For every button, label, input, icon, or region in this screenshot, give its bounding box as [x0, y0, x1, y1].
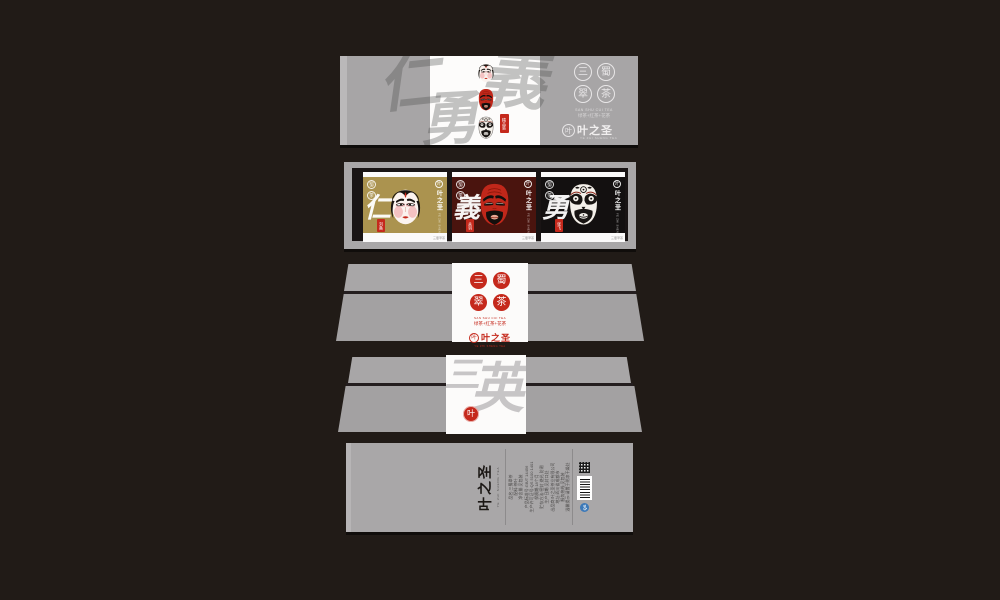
- name-seal: 关羽: [466, 219, 474, 232]
- brand-latin-name: SAN SHU CUI TEA: [554, 108, 634, 112]
- maker-logo-subtext: YE ZHI SHENG TEA: [580, 136, 617, 140]
- brand-seal-grid: 三 蜀 翠 茶: [574, 63, 615, 103]
- maker-logo-name: 叶之圣: [475, 463, 495, 511]
- maker-logo-name: 叶之圣: [524, 190, 533, 211]
- maker-logo: 叶之圣 YE ZHI SHENG TEA: [475, 463, 500, 511]
- brand-tagline: 绿茶+红茶+花茶: [554, 113, 634, 119]
- card-logo-column: 叶 叶之圣 YE ZHI SHENG TEA: [434, 180, 444, 233]
- mini-seal-char: 蜀: [545, 180, 554, 189]
- codes-row: QS: [577, 462, 592, 512]
- qs-certification-icon: QS: [580, 503, 589, 512]
- brand-seal-char: 茶: [597, 85, 615, 103]
- brand-seal-grid-red: 三 蜀 翠 茶: [470, 272, 510, 311]
- guan-yu-red-mask-icon: [476, 87, 496, 113]
- mini-seal-char: 蜀: [456, 180, 465, 189]
- maker-logo-name: 叶之圣: [613, 190, 622, 211]
- card-fine-print: 三蜀翠茶: [522, 236, 534, 240]
- card-body-black: 蜀 茶 勇 张飞 叶 叶之圣 YE ZHI SHENG TEA: [541, 177, 625, 233]
- lid2-white-strip: 三 英 叶: [446, 355, 526, 434]
- panel-edge-highlight: [346, 443, 351, 532]
- maker-logo-subtext: YE ZHI SHENG TEA: [438, 213, 441, 233]
- brand-seal-char: 茶: [493, 294, 510, 311]
- liu-bei-white-mask-icon: [476, 59, 496, 85]
- brand-seal-char: 蜀: [597, 63, 615, 81]
- maker-logo: 叶 叶之圣: [469, 331, 511, 344]
- brand-latin-name: SAN SHU CUI TEA: [474, 316, 506, 320]
- barcode-bars: [580, 478, 590, 498]
- card-logo-column: 叶 叶之圣 YE ZHI SHENG TEA: [523, 180, 533, 233]
- leaf-logo-icon: 叶: [435, 180, 443, 188]
- liu-bei-white-mask-icon: [386, 180, 425, 230]
- opera-masks-stack: [476, 59, 496, 141]
- watermark-char: 英: [470, 361, 524, 415]
- tea-card-guanyu: 蜀 茶 義 关羽 叶 叶之圣 YE ZHI SHENG TEA 三蜀翠茶: [452, 172, 536, 242]
- top-sleeve-panel: 仁 義 勇 精品装 三 蜀 翠 茶 SAN SHU CUI TEA 绿茶+红茶+…: [340, 56, 638, 145]
- barcode: [577, 476, 592, 500]
- name-seal: 刘备: [377, 219, 385, 232]
- maker-logo-subtext: YE ZHI SHENG TEA: [474, 345, 505, 348]
- red-round-seal: 叶: [463, 406, 479, 422]
- brand-tagline: 绿茶+红茶+花茶: [474, 321, 506, 327]
- zhang-fei-black-mask-icon: [564, 180, 603, 230]
- leaf-logo-icon: 叶: [524, 180, 532, 188]
- brand-seal-char: 三: [574, 63, 592, 81]
- qr-code-icon: [579, 462, 590, 473]
- brand-seal-char: 三: [470, 272, 487, 289]
- zhang-fei-black-mask-icon: [476, 115, 496, 141]
- leaf-logo-icon: 叶: [613, 180, 621, 188]
- tea-card-zhangfei: 蜀 茶 勇 张飞 叶 叶之圣 YE ZHI SHENG TEA 三蜀翠茶: [541, 172, 625, 242]
- maker-logo-subtext: YE ZHI SHENG TEA: [616, 213, 619, 233]
- gift-tag-seal: 精品装: [500, 114, 509, 133]
- maker-logo-name: 叶之圣: [481, 331, 511, 344]
- brand-seal-char: 翠: [574, 85, 592, 103]
- card-body-gold: 蜀 茶 仁 刘备 叶 叶之圣 YE ZHI SHENG TEA: [363, 177, 447, 233]
- maker-logo-name: 叶之圣: [435, 190, 444, 211]
- tea-card-liubei: 蜀 茶 仁 刘备 叶 叶之圣 YE ZHI SHENG TEA 三蜀翠茶: [363, 172, 447, 242]
- product-info-text: 品名:三蜀翠茶 配料:茶叶 净含量:见包装 产品标准号:GB/T 14456 生…: [505, 449, 573, 525]
- maker-logo-subtext: YE ZHI SHENG TEA: [496, 463, 500, 511]
- info-line: 温馨提示:请置于阴凉干燥处: [565, 449, 570, 525]
- maker-logo-subtext: YE ZHI SHENG TEA: [527, 213, 530, 233]
- brand-seal-char: 蜀: [493, 272, 510, 289]
- lid-white-strip: 三 蜀 翠 茶 SAN SHU CUI TEA 绿茶+红茶+花茶 叶 叶之圣 Y…: [452, 263, 528, 342]
- packaging-mockup-canvas: 仁 義 勇 精品装 三 蜀 翠 茶 SAN SHU CUI TEA 绿茶+红茶+…: [0, 0, 1000, 600]
- card-body-maroon: 蜀 茶 義 关羽 叶 叶之圣 YE ZHI SHENG TEA: [452, 177, 536, 233]
- mini-seal-char: 蜀: [367, 180, 376, 189]
- leaf-logo-icon: 叶: [562, 124, 575, 137]
- name-seal: 张飞: [555, 219, 563, 232]
- rotated-info-block: 叶之圣 YE ZHI SHENG TEA 品名:三蜀翠茶 配料:茶叶 净含量:见…: [467, 447, 615, 527]
- brand-seal-char: 翠: [470, 294, 487, 311]
- card-logo-column: 叶 叶之圣 YE ZHI SHENG TEA: [612, 180, 622, 233]
- info-back-panel: 叶之圣 YE ZHI SHENG TEA 品名:三蜀翠茶 配料:茶叶 净含量:见…: [346, 443, 633, 532]
- panel-edge-highlight: [340, 56, 347, 145]
- card-fine-print: 三蜀翠茶: [611, 236, 623, 240]
- window-box-panel: 蜀 茶 仁 刘备 叶 叶之圣 YE ZHI SHENG TEA 三蜀翠茶 蜀 茶…: [344, 162, 636, 249]
- guan-yu-red-mask-icon: [475, 180, 514, 230]
- card-fine-print: 三蜀翠茶: [433, 236, 445, 240]
- leaf-logo-icon: 叶: [469, 333, 479, 343]
